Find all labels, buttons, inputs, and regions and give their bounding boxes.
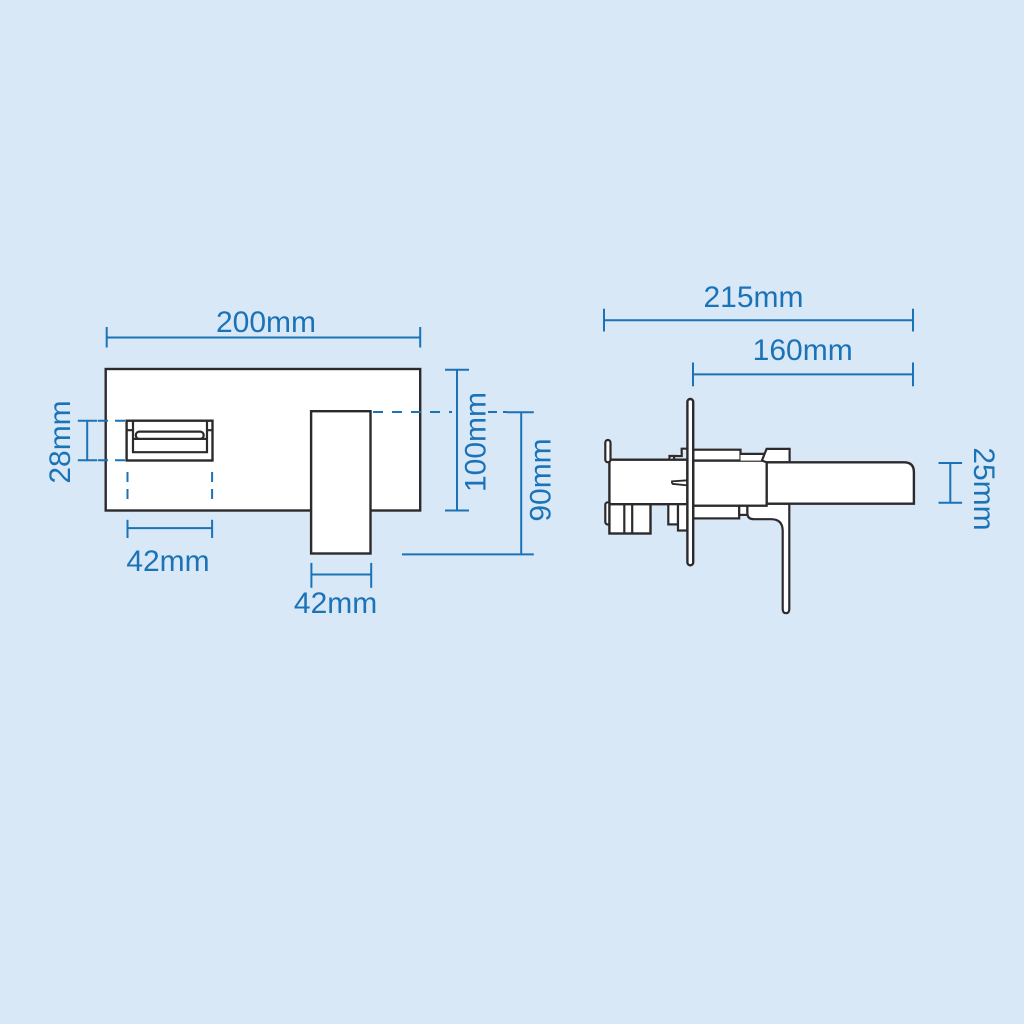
svg-text:200mm: 200mm bbox=[216, 306, 316, 339]
svg-text:28mm: 28mm bbox=[44, 400, 77, 483]
svg-text:100mm: 100mm bbox=[460, 392, 493, 492]
svg-text:215mm: 215mm bbox=[703, 281, 803, 314]
svg-text:42mm: 42mm bbox=[294, 587, 377, 620]
svg-text:42mm: 42mm bbox=[126, 545, 209, 578]
svg-text:160mm: 160mm bbox=[753, 334, 853, 367]
svg-text:90mm: 90mm bbox=[524, 438, 557, 521]
svg-text:25mm: 25mm bbox=[967, 447, 1000, 530]
